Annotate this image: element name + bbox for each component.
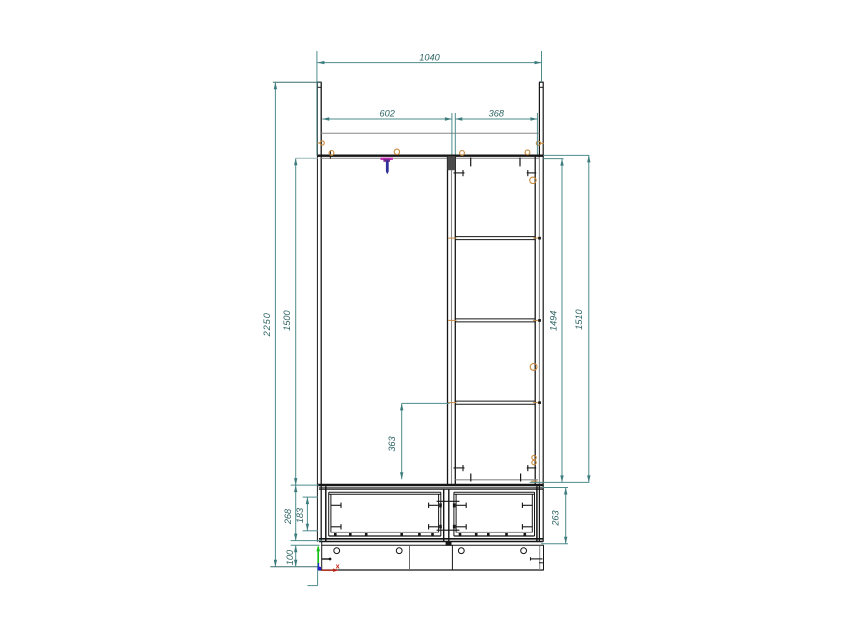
svg-text:602: 602: [380, 109, 395, 119]
svg-text:2250: 2250: [262, 312, 272, 337]
svg-text:183: 183: [295, 507, 305, 523]
svg-text:x: x: [336, 562, 340, 571]
svg-text:363: 363: [387, 435, 397, 451]
svg-text:1494: 1494: [549, 311, 559, 331]
svg-text:100: 100: [285, 549, 295, 565]
svg-text:263: 263: [550, 509, 560, 526]
svg-text:1040: 1040: [419, 53, 440, 63]
svg-text:1500: 1500: [282, 309, 292, 330]
svg-text:1510: 1510: [574, 308, 584, 329]
svg-text:368: 368: [489, 109, 505, 119]
svg-text:268: 268: [283, 508, 293, 525]
